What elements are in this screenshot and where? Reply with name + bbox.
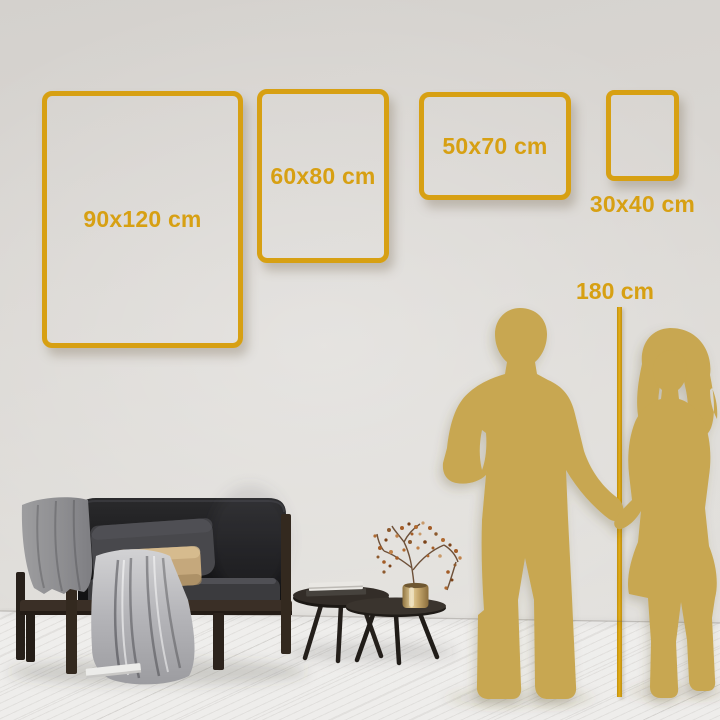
size-label-50x70: 50x70 cm bbox=[442, 133, 547, 160]
size-label-90x120: 90x120 cm bbox=[83, 206, 201, 233]
height-reference-label: 180 cm bbox=[553, 278, 677, 305]
size-frame-60x80: 60x80 cm bbox=[257, 89, 389, 263]
size-frame-50x70: 50x70 cm bbox=[419, 92, 571, 200]
wall-art-size-guide: 90x120 cm 60x80 cm 50x70 cm 30x40 cm 180… bbox=[0, 0, 720, 720]
size-label-60x80: 60x80 cm bbox=[270, 163, 375, 190]
height-ruler-line bbox=[617, 307, 622, 697]
size-label-30x40: 30x40 cm bbox=[569, 191, 716, 218]
size-frame-90x120: 90x120 cm bbox=[42, 91, 243, 348]
size-frame-30x40 bbox=[606, 90, 679, 181]
